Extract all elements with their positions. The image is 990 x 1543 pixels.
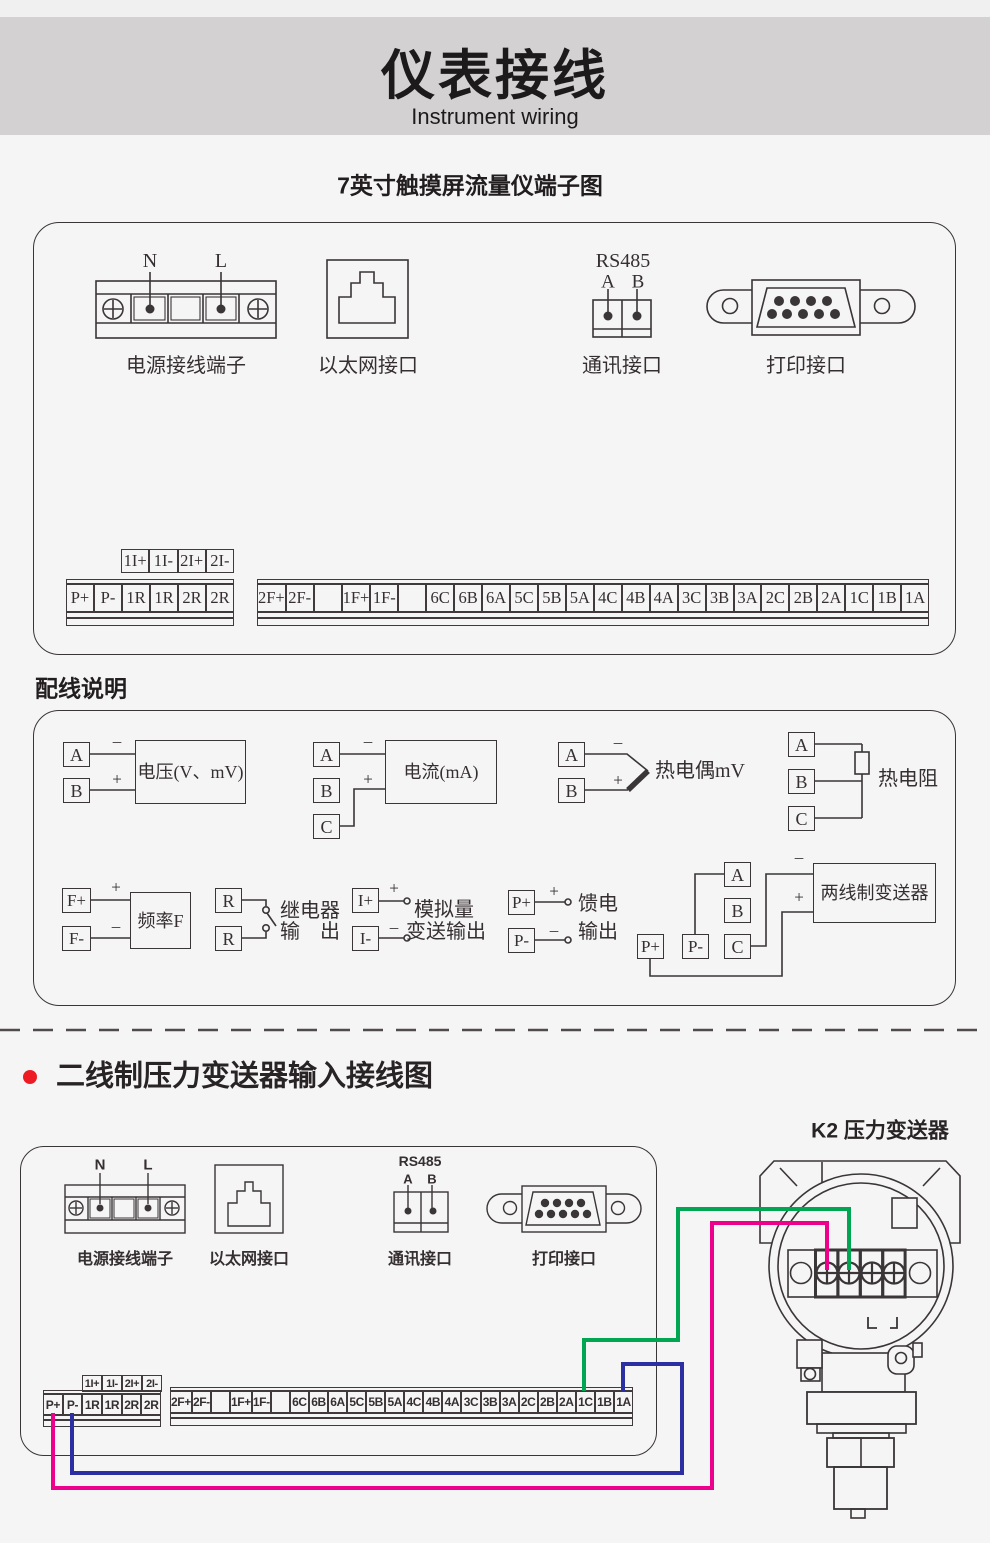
terminal-cell: 2F- (286, 584, 314, 612)
feed-plus: + (549, 883, 559, 900)
diagram1-title: 7英寸触摸屏流量仪端子图 (337, 175, 603, 198)
terminal-cell: 2I+ (178, 549, 206, 573)
d1-aux-strip: 1I+1I-2I+2I- (121, 549, 234, 573)
terminal-cell: 1C (576, 1391, 595, 1413)
terminal-cell: 2F+ (170, 1391, 192, 1413)
current-terminal-c: C (313, 814, 340, 839)
terminal-cell: 2B (538, 1391, 557, 1413)
feed-terminal-pm: P- (508, 928, 535, 953)
page-subtitle: Instrument wiring (411, 106, 579, 128)
terminal-cell: P+ (66, 584, 94, 612)
terminal-cell: 3A (734, 584, 762, 612)
terminal-cell: 3B (706, 584, 734, 612)
terminal-cell: 2R (122, 1394, 142, 1415)
terminal-cell: 1C (845, 584, 873, 612)
twowire-terminal-c: C (724, 934, 751, 959)
xmtr-loop-a: A (879, 1321, 887, 1333)
rs485-a-label: A (403, 1173, 412, 1186)
terminal-cell: 3C (678, 584, 706, 612)
terminal-cell (271, 1391, 290, 1413)
current-box: 电流(mA) (385, 740, 497, 804)
terminal-cell: 1F+ (230, 1391, 252, 1413)
feed-terminal-pp: P+ (508, 890, 535, 915)
terminal-cell: 4A (442, 1391, 461, 1413)
twowire-minus: – (795, 849, 804, 866)
terminal-cell: 2R (141, 1394, 161, 1415)
d2-strip-right: 2F+2F-1F+1F-6C6B6A5C5B5A4C4B4A3C3B3A2C2B… (170, 1387, 633, 1426)
thermocouple-terminal-a: A (558, 742, 585, 767)
terminal-cell: P+ (43, 1394, 63, 1415)
analog-terminal-ip: I+ (352, 888, 379, 913)
terminal-cell: 2R (206, 584, 234, 612)
rs485-label: RS485 (596, 251, 650, 271)
current-terminal-a: A (313, 742, 340, 767)
terminal-cell: 6A (328, 1391, 347, 1413)
terminal-cell: 6B (309, 1391, 328, 1413)
wiring-notes-heading: 配线说明 (35, 678, 127, 701)
terminal-cell: 1R (150, 584, 178, 612)
header-top-strip (0, 0, 990, 17)
thermocouple-plus: + (613, 772, 623, 789)
rtd-terminal-a: A (788, 732, 815, 757)
rs485-b-label: B (632, 273, 645, 292)
power-n-label: N (95, 1158, 106, 1173)
ethernet-label: 以太网接口 (318, 356, 418, 376)
terminal-cell: 2A (817, 584, 845, 612)
relay-label-line2: 输 出 (280, 922, 340, 942)
terminal-cell: 3C (461, 1391, 480, 1413)
terminal-cell: 4C (404, 1391, 423, 1413)
frequency-minus: – (112, 918, 121, 935)
relay-label-line1: 继电器 (280, 901, 340, 921)
analog-terminal-im: I- (352, 926, 379, 951)
power-terminal-label: 电源接线端子 (77, 1252, 173, 1268)
frequency-terminal-fm: F- (62, 926, 91, 951)
terminal-cell (398, 584, 426, 612)
terminal-cell: 1F+ (342, 584, 371, 612)
printer-port-label: 打印接口 (766, 356, 846, 376)
power-l-label: L (143, 1158, 152, 1173)
terminal-cell: 1I- (149, 549, 177, 573)
relay-terminal-r2: R (215, 926, 242, 951)
strip-rail (257, 618, 929, 626)
xmtr-term-a: A (821, 1318, 833, 1334)
terminal-cell: 2B (789, 584, 817, 612)
frequency-box: 频率F (130, 892, 191, 949)
terminal-cell: 1A (901, 584, 929, 612)
section2-title: 二线制压力变送器输入接线图 (56, 1063, 433, 1092)
terminal-cell: 5A (566, 584, 594, 612)
terminal-cell: 2C (519, 1391, 538, 1413)
terminal-cell: 1F- (252, 1391, 271, 1413)
analog-minus: – (390, 919, 399, 936)
twowire-terminal-pm: P- (682, 934, 709, 959)
terminal-cell: P- (94, 584, 122, 612)
thermocouple-terminal-b: B (558, 778, 585, 803)
twowire-terminal-b: B (724, 898, 751, 923)
frequency-terminal-fp: F+ (62, 888, 91, 913)
comm-port-label: 通讯接口 (388, 1252, 452, 1268)
pressure-transmitter-label: K2 压力变送器 (811, 1121, 949, 1142)
voltage-plus: + (112, 771, 122, 788)
terminal-cell: 2C (761, 584, 789, 612)
d1-strip-left: P+P-1R1R2R2R (66, 579, 234, 626)
xmtr-sign-2: – (844, 1300, 853, 1317)
terminal-cell: 6B (454, 584, 482, 612)
analog-label-line1: 模拟量 (414, 900, 474, 920)
terminal-cell: 2I- (206, 549, 234, 573)
relay-terminal-r1: R (215, 888, 242, 913)
terminal-cell: 2F- (192, 1391, 211, 1413)
voltage-minus: – (113, 733, 122, 750)
terminal-cell: 1F- (370, 584, 398, 612)
xmtr-sign-4: – (889, 1300, 898, 1317)
page-title: 仪表接线 (381, 49, 609, 103)
thermocouple-label: 热电偶mV (655, 761, 745, 781)
terminal-cell: 1B (595, 1391, 614, 1413)
terminal-cell: 5C (510, 584, 538, 612)
terminal-cell: 5B (538, 584, 566, 612)
voltage-terminal-a: A (63, 742, 90, 767)
feed-label-line1: 馈电 (578, 894, 618, 914)
terminal-cell: P- (63, 1394, 83, 1415)
terminal-cell: 6A (482, 584, 510, 612)
thermocouple-minus: – (614, 734, 623, 751)
rs485-b-label: B (427, 1173, 436, 1186)
terminal-cell: 4B (622, 584, 650, 612)
terminal-cell: 3A (500, 1391, 519, 1413)
rs485-a-label: A (601, 273, 615, 292)
terminal-cell: 4C (594, 584, 622, 612)
printer-port-label: 打印接口 (532, 1252, 596, 1268)
twowire-plus: + (794, 889, 804, 906)
terminal-cell: 3B (481, 1391, 500, 1413)
terminal-cell: 1R (122, 584, 150, 612)
twowire-box: 两线制变送器 (813, 863, 936, 923)
terminal-cell: 2F+ (257, 584, 286, 612)
d1-strip-right: 2F+2F-1F+1F-6C6B6A5C5B5A4C4B4A3C3B3A2C2B… (257, 579, 929, 626)
terminal-cell: 2R (178, 584, 206, 612)
frequency-plus: + (111, 879, 121, 896)
analog-label-line2: 变送输出 (406, 922, 486, 942)
terminal-cell (314, 584, 342, 612)
power-n-label: N (143, 251, 157, 271)
d2-strip-left: P+P-1R1R2R2R (43, 1390, 161, 1427)
terminal-cell: 4B (423, 1391, 442, 1413)
current-terminal-b: B (313, 778, 340, 803)
analog-plus: + (389, 880, 399, 897)
twowire-terminal-a: A (724, 862, 751, 887)
terminal-cell: 5C (347, 1391, 366, 1413)
feed-label-line2: 输出 (578, 922, 618, 942)
voltage-box: 电压(V、mV) (135, 740, 246, 804)
terminal-cell: 1R (82, 1394, 102, 1415)
terminal-cell: 1R (102, 1394, 122, 1415)
terminal-cell: 1A (614, 1391, 633, 1413)
current-minus: – (364, 733, 373, 750)
terminal-cell: 6C (290, 1391, 309, 1413)
strip-rail (66, 618, 234, 626)
feed-minus: – (550, 922, 559, 939)
xmtr-sign-3: + (867, 1299, 877, 1316)
rtd-terminal-c: C (788, 806, 815, 831)
power-l-label: L (215, 251, 227, 271)
rtd-label: 热电阻 (878, 769, 938, 789)
terminal-cell: 1B (873, 584, 901, 612)
twowire-terminal-pp: P+ (637, 934, 664, 959)
terminal-cell (211, 1391, 230, 1413)
voltage-terminal-b: B (63, 778, 90, 803)
xmtr-sign-1: + (822, 1300, 832, 1317)
terminal-cell: 5A (385, 1391, 404, 1413)
power-terminal-label: 电源接线端子 (126, 356, 246, 376)
strip-rail (43, 1420, 161, 1427)
instrument-wiring-page: 仪表接线 Instrument wiring 7英寸触摸屏流量仪端子图 N L … (0, 0, 990, 1543)
xmtr-term-b: B (843, 1318, 855, 1334)
ethernet-label: 以太网接口 (209, 1252, 289, 1268)
strip-rail (170, 1418, 633, 1426)
terminal-cell: 6C (426, 584, 454, 612)
terminal-cell: 5B (366, 1391, 385, 1413)
terminal-cell: 4A (650, 584, 678, 612)
comm-port-label: 通讯接口 (582, 356, 662, 376)
current-plus: + (363, 771, 373, 788)
terminal-cell: 1I+ (121, 549, 149, 573)
rtd-terminal-b: B (788, 769, 815, 794)
rs485-label: RS485 (399, 1154, 442, 1168)
terminal-cell: 2A (557, 1391, 576, 1413)
